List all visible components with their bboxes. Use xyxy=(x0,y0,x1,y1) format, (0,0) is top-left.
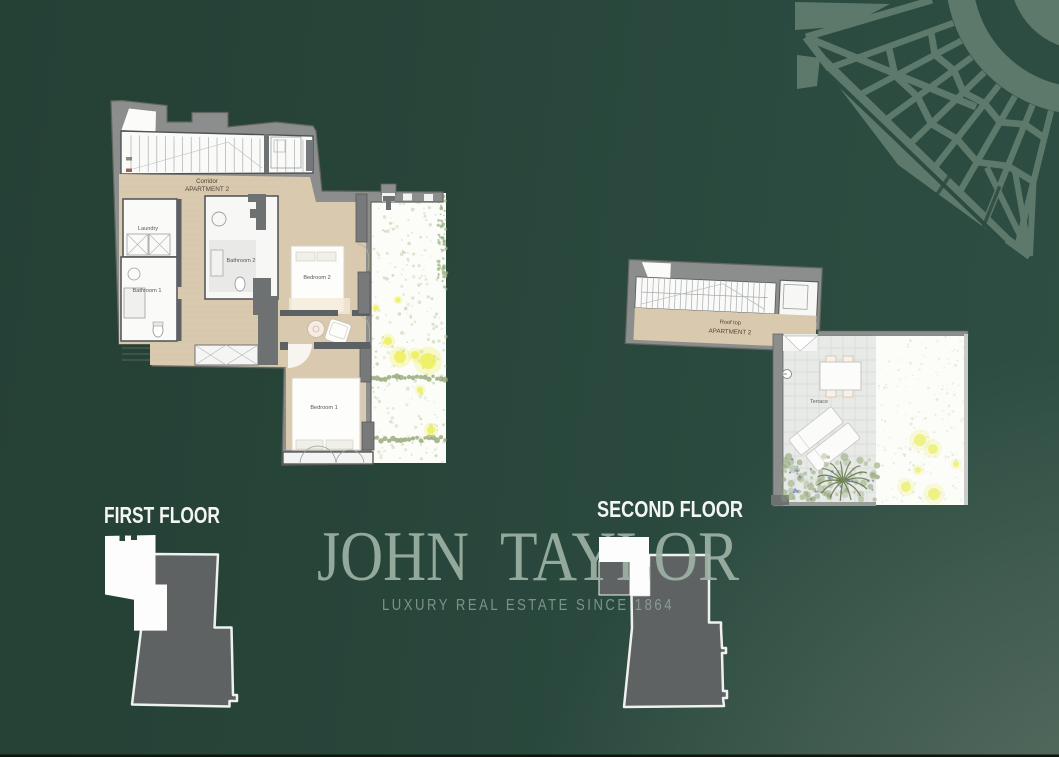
svg-text:Roof top: Roof top xyxy=(720,320,741,327)
svg-text:Corridor: Corridor xyxy=(196,179,218,185)
svg-text:Terrace: Terrace xyxy=(810,399,828,405)
svg-text:SECOND FLOOR: SECOND FLOOR xyxy=(597,496,743,522)
svg-text:LUXURY REAL ESTATE SINCE 1864: LUXURY REAL ESTATE SINCE 1864 xyxy=(382,597,674,614)
svg-text:JOHN: JOHN xyxy=(317,518,469,596)
svg-text:Bedroom 2: Bedroom 2 xyxy=(303,275,330,281)
svg-text:Bedroom 1: Bedroom 1 xyxy=(310,405,337,411)
svg-text:FIRST FLOOR: FIRST FLOOR xyxy=(104,502,220,528)
svg-text:Bathroom 2: Bathroom 2 xyxy=(227,258,256,264)
svg-text:Bathroom 1: Bathroom 1 xyxy=(133,288,162,294)
svg-text:APARTMENT 2: APARTMENT 2 xyxy=(185,186,229,193)
svg-text:Laundry: Laundry xyxy=(138,226,158,232)
